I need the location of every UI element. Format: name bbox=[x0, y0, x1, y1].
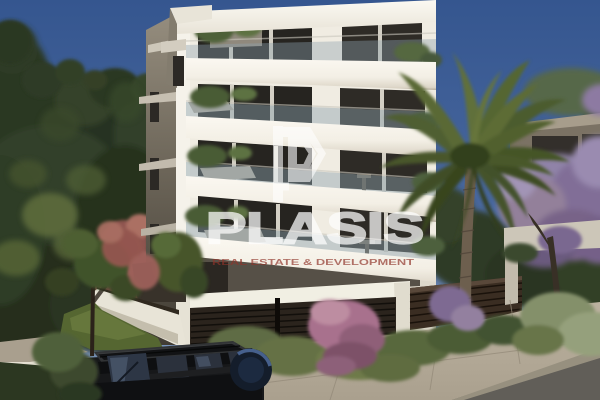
svg-text:PLASIS: PLASIS bbox=[206, 204, 424, 253]
svg-text:REAL ESTATE & DEVELOPMENT: REAL ESTATE & DEVELOPMENT bbox=[212, 258, 414, 267]
